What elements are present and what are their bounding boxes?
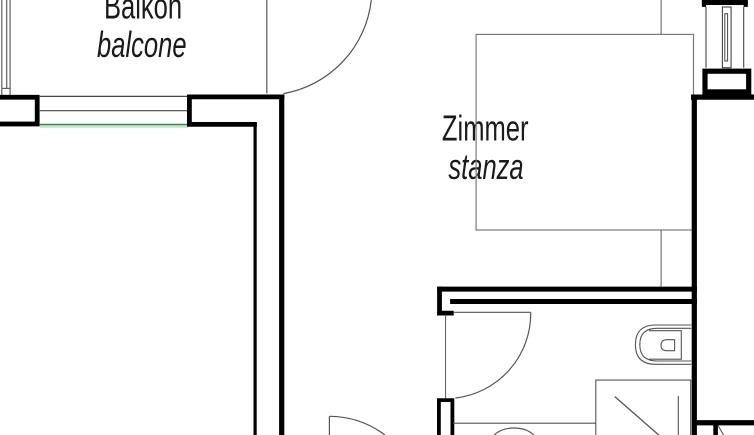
svg-text:Balkon: Balkon (104, 0, 182, 27)
svg-text:stanza: stanza (448, 147, 523, 187)
svg-text:Zimmer: Zimmer (442, 108, 529, 148)
svg-text:balcone: balcone (97, 25, 186, 65)
